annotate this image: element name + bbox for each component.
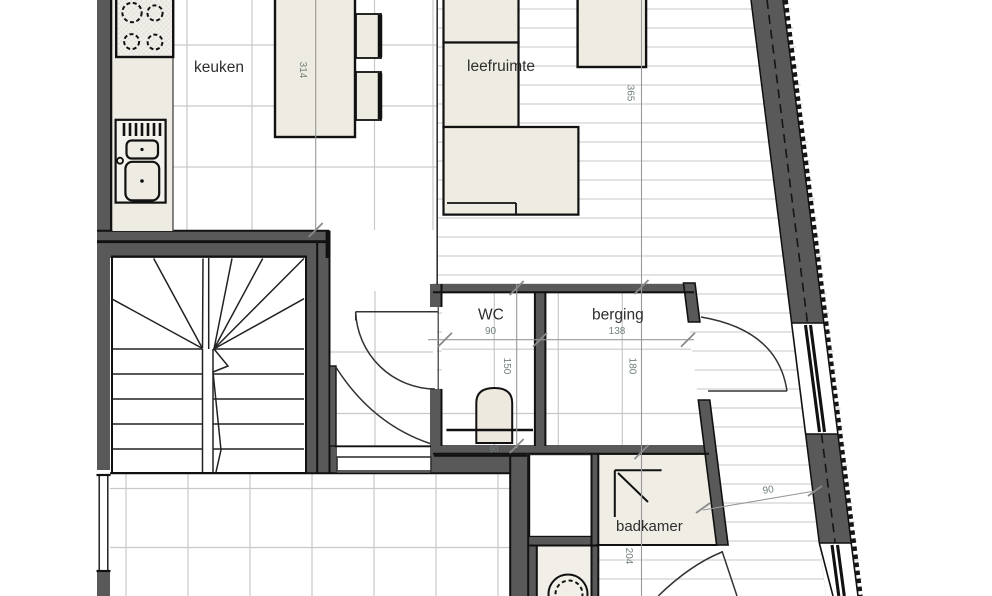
svg-text:90: 90 (485, 326, 497, 337)
svg-text:180: 180 (627, 358, 638, 375)
svg-text:keuken: keuken (194, 59, 244, 76)
svg-text:WC: WC (478, 307, 504, 324)
svg-text:leefruimte: leefruimte (467, 58, 535, 75)
svg-text:badkamer: badkamer (616, 518, 683, 535)
svg-text:314: 314 (297, 62, 308, 79)
svg-text:138: 138 (609, 326, 626, 337)
svg-text:150: 150 (501, 358, 512, 375)
svg-text:204: 204 (623, 548, 634, 565)
svg-text:berging: berging (592, 307, 644, 324)
svg-text:90: 90 (490, 445, 499, 454)
svg-text:365: 365 (625, 85, 636, 102)
